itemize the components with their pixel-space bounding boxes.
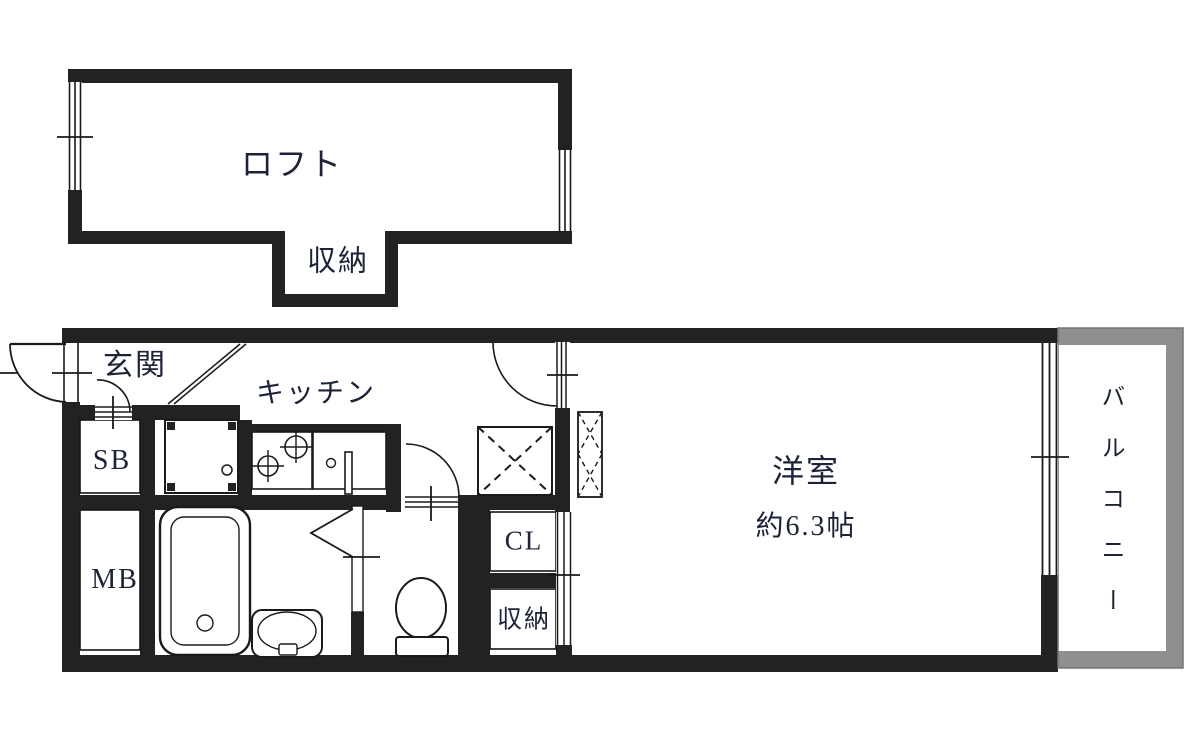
toilet	[396, 578, 448, 656]
room-door	[493, 342, 578, 408]
loft-window-right	[558, 150, 572, 231]
floor-plan: ロフト 収納 玄関 キッチン SB MB CL 収納 洋室 約6.3帖 バルコニ…	[0, 0, 1200, 748]
stove-area	[252, 432, 312, 489]
faucet	[345, 452, 352, 494]
fold-door-leaf	[311, 509, 353, 557]
kitchen-counter	[252, 432, 386, 494]
wall-segment	[458, 495, 570, 510]
wall-segment	[62, 328, 1058, 343]
wall-segment	[62, 402, 80, 672]
wall-segment	[272, 294, 398, 307]
door-arc	[406, 444, 459, 497]
wall-segment	[68, 231, 285, 244]
balcony-wall-right	[1166, 328, 1183, 668]
room-size-label: 約6.3帖	[755, 513, 856, 541]
loft-label: ロフト	[241, 148, 343, 180]
washing-machine-pan	[165, 420, 238, 493]
wall-segment	[1041, 575, 1058, 672]
wall-segment	[68, 69, 82, 82]
entry-door	[0, 343, 92, 402]
loft-storage-label: 収納	[307, 248, 369, 277]
western-room-label: 洋室	[772, 455, 840, 487]
wall-segment	[62, 655, 1058, 672]
wall-segment	[140, 405, 155, 672]
wall-segment	[386, 424, 401, 512]
bathtub	[160, 507, 250, 655]
entrance-step-line	[168, 344, 246, 404]
kitchen-label: キッチン	[256, 380, 376, 408]
shoe-box-label: SB	[93, 447, 131, 475]
storage-label: 収納	[497, 608, 551, 633]
door-arc	[493, 342, 557, 406]
loft-ladder	[578, 412, 602, 497]
meter-box-label: MB	[91, 566, 139, 594]
floor-plan-drawing	[0, 0, 1200, 748]
balcony-wall-top	[1058, 328, 1183, 345]
drain	[222, 465, 232, 475]
wall-segment	[68, 69, 572, 83]
folding-bath-door	[311, 506, 380, 612]
wall-segment	[240, 424, 386, 432]
refrigerator-space	[478, 427, 552, 495]
vanity-sink	[252, 610, 322, 657]
wall-segment	[385, 231, 572, 244]
balcony-wall-bottom	[1058, 651, 1183, 668]
drain	[327, 459, 336, 468]
closet-label: CL	[505, 528, 544, 555]
wall-segment	[555, 408, 570, 512]
balcony-label: バルコニー	[1098, 384, 1122, 639]
wall-segment	[556, 645, 572, 657]
faucet	[279, 644, 297, 655]
toilet-bowl	[396, 578, 446, 638]
wall-segment	[458, 573, 558, 588]
loft-window-left	[57, 82, 93, 190]
wall-segment	[62, 405, 95, 420]
washroom-door	[401, 444, 459, 521]
wall-segment	[351, 612, 364, 657]
toilet-tank	[396, 637, 448, 656]
balcony-window	[1031, 343, 1069, 575]
wall-segment	[558, 69, 572, 150]
entrance-label: 玄関	[103, 351, 167, 381]
